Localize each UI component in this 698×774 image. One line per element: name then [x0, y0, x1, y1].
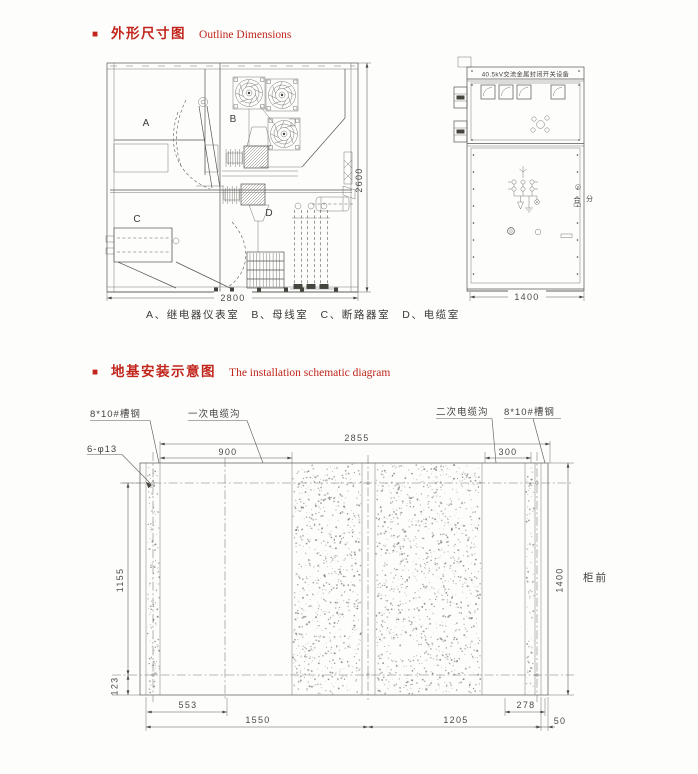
compartment-b-label: B — [230, 114, 237, 125]
busbar-insulators — [233, 77, 300, 150]
section1-header: ■ 外形尺寸图 Outline Dimensions — [92, 22, 291, 42]
concrete-speckle — [147, 463, 535, 694]
cable-termination — [292, 203, 304, 289]
front-view: 40.5kV交流金属封闭开关设备 — [454, 57, 593, 302]
compartment-a-label: A — [143, 118, 150, 129]
cable-termination — [318, 203, 330, 289]
dim-300: 300 — [499, 447, 518, 457]
primary-trench-label: 一次电缆沟 — [188, 408, 241, 420]
secondary-trench-label: 二次电缆沟 — [436, 406, 489, 418]
open-label: 分 — [586, 194, 593, 203]
section2-title-zh: 地基安装示意图 — [111, 360, 216, 380]
section2-title-en: The installation schematic diagram — [229, 367, 390, 379]
section1-title-en: Outline Dimensions — [199, 29, 291, 41]
cable-termination — [305, 203, 317, 289]
lower-interrupter — [241, 184, 265, 205]
panel-meter — [499, 85, 513, 99]
panel-meter — [481, 85, 495, 99]
operation-buttons — [508, 228, 572, 238]
dim-50: 50 — [554, 716, 567, 726]
dim-278: 278 — [517, 700, 536, 710]
compartment-d-label: D — [265, 208, 272, 219]
section2-header: ■ 地基安装示意图 The installation schematic dia… — [92, 360, 390, 380]
foundation-dimensions: 2855 900 300 1155 123 1400 553 278 1550 … — [110, 433, 575, 731]
panel-meter — [517, 85, 531, 99]
door-screws — [471, 70, 580, 275]
foundation-plan-figure: 8*10#槽钢 一次电缆沟 二次电缆沟 8*10#槽钢 6-φ13 柜前 285… — [82, 398, 630, 745]
dim-2600: 2600 — [354, 167, 364, 192]
dim-2800: 2800 — [220, 293, 245, 303]
side-section-view: A B C D 2800 2600 — [106, 63, 371, 303]
dim-1155: 1155 — [115, 568, 125, 593]
mimic-diagram — [508, 166, 539, 212]
panel-meters — [481, 85, 565, 99]
dim-900: 900 — [219, 447, 238, 457]
dim-1400-front: 1400 — [514, 292, 539, 302]
front-nameplate: 40.5kV交流金属封闭开关设备 — [482, 71, 570, 79]
drive-cylinder — [312, 152, 355, 211]
cabinet-front-label: 柜前 — [583, 571, 608, 584]
dim-553: 553 — [179, 700, 198, 710]
ventilation-grille — [247, 252, 284, 288]
dim-1550: 1550 — [245, 715, 270, 725]
foundation-plan — [112, 452, 574, 702]
cable-terminations — [292, 203, 330, 289]
panel-meter — [551, 85, 565, 99]
channel-steel-left-label: 8*10#槽钢 — [90, 408, 141, 420]
anchor-bolt-holes — [152, 482, 539, 677]
dim-2855: 2855 — [344, 433, 369, 443]
compartment-c-label: C — [133, 214, 140, 225]
bullet-icon: ■ — [92, 368, 98, 378]
outline-dimensions-figure: A B C D 2800 2600 40.5kV交流金属封闭开关设备 — [95, 52, 605, 307]
compartment-caption: A、继电器仪表室 B、母线室 C、断路器室 D、电缆室 — [146, 307, 460, 322]
section1-title-zh: 外形尺寸图 — [111, 22, 186, 42]
busbar-insulator — [233, 77, 265, 109]
channel-steel-right-label: 8*10#槽钢 — [504, 406, 555, 418]
dim-1400-depth: 1400 — [555, 567, 565, 592]
operating-lever — [173, 98, 245, 288]
close-label: 合 — [574, 195, 581, 204]
dim-123: 123 — [110, 677, 120, 696]
bullet-icon: ■ — [92, 30, 98, 40]
hinge — [454, 87, 467, 108]
side-hinges — [454, 87, 467, 142]
breaker-drawer — [106, 228, 230, 288]
close-open-indicator: 合 分 — [574, 184, 594, 206]
indicator-lamps — [531, 116, 549, 132]
busbar-insulator — [266, 79, 298, 111]
upper-interrupter — [244, 146, 268, 168]
upper-flange-stack — [226, 149, 242, 167]
bolt-holes-label: 6-φ13 — [87, 444, 117, 455]
lower-flange-stack — [223, 186, 239, 204]
dim-1205: 1205 — [443, 715, 468, 725]
hinge — [454, 121, 467, 142]
